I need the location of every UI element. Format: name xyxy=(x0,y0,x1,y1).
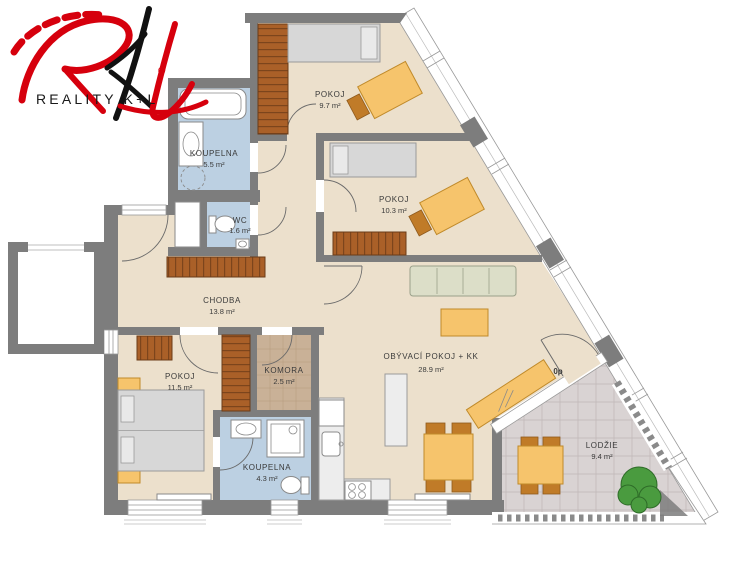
area-wc: 1.6 m² xyxy=(229,226,251,235)
bench xyxy=(157,494,211,500)
window-bottom-1 xyxy=(124,500,206,524)
floorplan-page: POKOJ 9.7 m² POKOJ 10.3 m² KOUPELNA 5.5 … xyxy=(0,0,749,562)
small-sink xyxy=(236,239,249,249)
logo: ® REALITY K+L xyxy=(14,9,206,118)
label-pokoj-mid: POKOJ xyxy=(379,195,409,204)
label-koupelna-bottom: KOUPELNA xyxy=(243,463,291,472)
sink xyxy=(179,122,203,166)
toilet xyxy=(281,477,309,495)
area-pokoj-bottom: 11.5 m² xyxy=(168,383,193,392)
area-koupelna-bottom: 4.3 m² xyxy=(256,474,278,483)
label-pokoj-bottom: POKOJ xyxy=(165,372,195,381)
stove xyxy=(345,481,371,500)
wardrobe xyxy=(333,232,406,255)
chodba-wardrobe xyxy=(167,257,265,277)
double-bed xyxy=(118,390,204,471)
floor-corridor-arm xyxy=(258,133,316,263)
shower xyxy=(267,420,304,457)
label-obyvaci: OBÝVACÍ POKOJ + KK xyxy=(384,352,479,361)
floorplan-drawing: POKOJ 9.7 m² POKOJ 10.3 m² KOUPELNA 5.5 … xyxy=(0,0,749,562)
window-bottom-2 xyxy=(267,500,302,524)
wardrobe-tall xyxy=(222,335,250,411)
nightstand xyxy=(118,471,140,483)
radiator xyxy=(415,494,470,500)
area-pokoj-top: 9.7 m² xyxy=(319,101,341,110)
area-pokoj-mid: 10.3 m² xyxy=(381,206,407,215)
area-lodzie: 9.4 m² xyxy=(591,452,613,461)
nightstand xyxy=(118,378,140,390)
window-left xyxy=(104,330,118,354)
floor-marker: 0p xyxy=(553,367,562,376)
entrance-opening xyxy=(122,205,166,215)
area-obyvaci: 28.9 m² xyxy=(418,365,444,374)
window-bottom-3 xyxy=(384,500,451,524)
label-wc: WC xyxy=(233,216,248,225)
sofa xyxy=(410,266,516,296)
wardrobe xyxy=(258,24,288,134)
area-chodba: 13.8 m² xyxy=(209,307,235,316)
shaft-niche xyxy=(175,202,200,247)
label-chodba: CHODBA xyxy=(203,296,241,305)
kitchen-sink xyxy=(322,432,343,456)
logo-registered: ® xyxy=(158,66,166,77)
logo-brand-text: REALITY K+L xyxy=(36,91,159,107)
area-koupelna-top: 5.5 m² xyxy=(203,160,225,169)
kitchen-island xyxy=(385,374,407,446)
area-komora: 2.5 m² xyxy=(273,377,295,386)
label-komora: KOMORA xyxy=(264,366,303,375)
coffee-table xyxy=(441,309,488,336)
label-pokoj-top: POKOJ xyxy=(315,90,345,99)
label-koupelna-top: KOUPELNA xyxy=(190,149,238,158)
bed xyxy=(330,143,416,177)
fridge xyxy=(319,400,344,426)
left-exterior-box xyxy=(8,242,104,354)
wall-top xyxy=(245,13,407,23)
wardrobe-small xyxy=(137,336,172,360)
label-lodzie: LODŽIE xyxy=(586,441,619,450)
sink xyxy=(231,420,261,438)
bed xyxy=(288,24,380,62)
